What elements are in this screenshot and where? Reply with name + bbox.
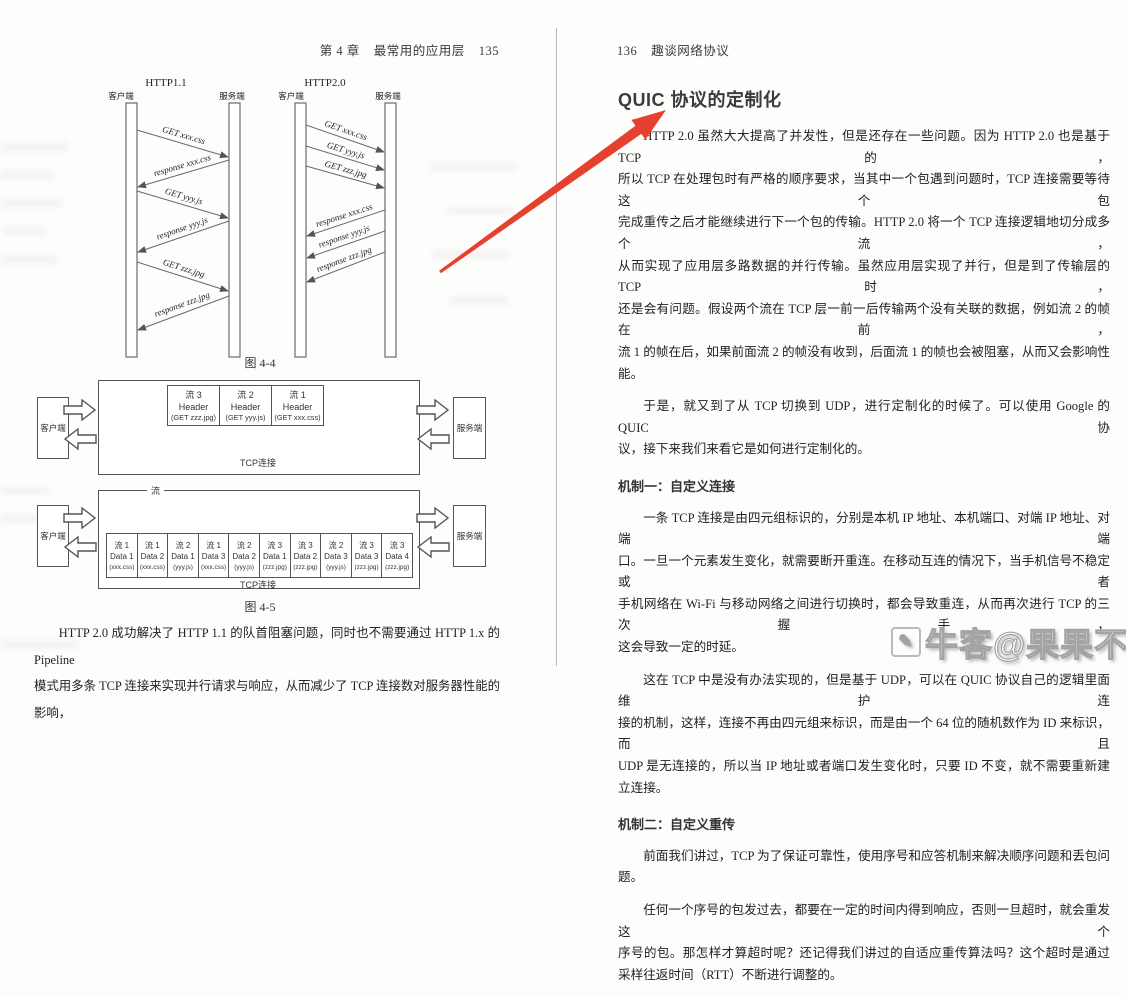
page-gutter-divider xyxy=(556,28,557,666)
stream-id: 流 3 xyxy=(168,389,219,401)
message-label: GET xxx.css xyxy=(161,124,207,146)
page-bleed xyxy=(450,296,508,305)
http11-title: HTTP1.1 xyxy=(145,77,186,89)
stream-id: 流 2 xyxy=(229,540,259,552)
figure-4-5-header-diagram: 客户端 流 3 Header (GET zzz.jpg) 流 2 Header … xyxy=(35,378,485,475)
frame-payload: (GET xxx.css) xyxy=(272,413,323,423)
frame-type: Data 2 xyxy=(138,551,168,563)
page-bleed xyxy=(0,170,54,180)
frame-type: Data 4 xyxy=(382,551,412,563)
page-bleed xyxy=(0,254,58,264)
nowcoder-logo-icon: ✎ xyxy=(891,627,921,657)
stream-id: 流 3 xyxy=(260,540,290,552)
text-line: 从而实现了应用层多路数据的并行传输。虽然应用层实现了并行，但是到了传输层的 TC… xyxy=(618,256,1110,299)
data-frame-box: 流 3Data 4(zzz.jpg) xyxy=(381,533,413,578)
watermark-text: 牛客@果果不戴 xyxy=(925,618,1126,666)
left-page-number: 135 xyxy=(479,44,499,58)
text-line: 接的机制，这样，连接不再由四元组来标识，而是由一个 64 位的随机数作为 ID … xyxy=(618,713,1110,756)
stream-box: 流 2 Header (GET yyy.js) xyxy=(219,385,272,426)
left-page: 第 4 章最常用的应用层135 HTTP1.1 客户端 服务端 GET xxx.… xyxy=(0,0,557,666)
right-page: 136趣谈网络协议 QUIC 协议的定制化 HTTP 2.0 虽然大大提高了并发… xyxy=(557,0,1126,666)
stream-id: 流 1 xyxy=(199,540,229,552)
text-line: UDP 是无连接的，所以当 IP 地址或者端口发生变化时，只要 ID 不变，就不… xyxy=(618,756,1110,799)
stream-id: 流 1 xyxy=(138,540,168,552)
block-arrow-left-icon xyxy=(415,535,451,559)
http20-server-label: 服务端 xyxy=(375,91,401,101)
page-bleed xyxy=(4,226,46,236)
frame-type: Data 3 xyxy=(352,551,382,563)
page-bleed xyxy=(446,206,514,215)
frame-payload: (yyy.js) xyxy=(321,563,351,572)
stream-id: 流 2 xyxy=(220,389,271,401)
stream-id: 流 1 xyxy=(107,540,137,552)
stream-id: 流 2 xyxy=(321,540,351,552)
http20-server-lifeline xyxy=(385,103,396,357)
block-arrow-right-icon xyxy=(62,398,98,422)
block-arrow-right-icon xyxy=(62,506,98,530)
page-bleed xyxy=(430,162,518,171)
http20-client-label: 客户端 xyxy=(278,91,304,101)
message-label: response zzz.jpg xyxy=(315,244,373,274)
frame-type: Data 1 xyxy=(260,551,290,563)
right-page-running-header: 136趣谈网络协议 xyxy=(617,40,729,59)
block-arrow-left-icon xyxy=(415,427,451,451)
message-label: GET zzz.jpg xyxy=(324,158,369,179)
stream-id: 流 3 xyxy=(352,540,382,552)
figure-4-5-data-diagram: 流 客户端 流 1Data 1(xxx.css) 流 1Data 2(xxx.c… xyxy=(35,483,485,595)
right-page-body: HTTP 2.0 虽然大大提高了并发性，但是还存在一些问题。因为 HTTP 2.… xyxy=(618,126,1110,997)
mechanism-1-heading: 机制一：自定义连接 xyxy=(618,476,1110,498)
page-bleed xyxy=(0,198,62,208)
page-bleed xyxy=(0,142,68,152)
server-box: 服务端 xyxy=(453,397,486,459)
data-frame-box: 流 1Data 2(xxx.css) xyxy=(137,533,169,578)
mechanism-2-heading: 机制二：自定义重传 xyxy=(618,814,1110,836)
data-frame-box: 流 3Data 1(zzz.jpg) xyxy=(259,533,291,578)
text-line: 所以 TCP 在处理包时有严格的顺序要求，当其中一个包遇到问题时，TCP 连接需… xyxy=(618,169,1110,212)
right-page-number: 136 xyxy=(617,44,637,58)
text-line: HTTP 2.0 成功解决了 HTTP 1.1 的队首阻塞问题，同时也不需要通过… xyxy=(34,620,500,673)
http11-client-lifeline xyxy=(126,103,137,357)
http11-server-lifeline xyxy=(229,103,240,357)
stream-id: 流 2 xyxy=(168,540,198,552)
chapter-label: 第 4 章 xyxy=(320,44,360,58)
stream-tag-label: 流 xyxy=(147,484,164,497)
frame-payload: (xxx.css) xyxy=(107,563,137,572)
data-frame-box: 流 1Data 3(xxx.css) xyxy=(198,533,230,578)
message-label: GET zzz.jpg xyxy=(162,257,207,280)
paragraph: 这在 TCP 中是没有办法实现的，但是基于 UDP，可以在 QUIC 协议自己的… xyxy=(618,670,1110,800)
text-line: 任何一个序号的包发过去，都要在一定的时间内得到响应，否则一旦超时，就会重发这个 xyxy=(618,900,1110,943)
text-line: 这在 TCP 中是没有办法实现的，但是基于 UDP，可以在 QUIC 协议自己的… xyxy=(618,670,1110,713)
frame-payload: (yyy.js) xyxy=(168,563,198,572)
data-frame-box: 流 2Data 3(yyy.js) xyxy=(320,533,352,578)
stream-header-row: 流 3 Header (GET zzz.jpg) 流 2 Header (GET… xyxy=(168,385,324,426)
frame-payload: (GET yyy.js) xyxy=(220,413,271,423)
http11-server-label: 服务端 xyxy=(219,91,245,101)
frame-type: Data 1 xyxy=(107,551,137,563)
tcp-connection-label: TCP连接 xyxy=(98,578,418,591)
block-arrow-right-icon xyxy=(415,506,451,530)
http20-client-lifeline xyxy=(295,103,306,357)
frame-payload: (xxx.css) xyxy=(199,563,229,572)
text-line: HTTP 2.0 虽然大大提高了并发性，但是还存在一些问题。因为 HTTP 2.… xyxy=(618,126,1110,169)
data-frame-row: 流 1Data 1(xxx.css) 流 1Data 2(xxx.css) 流 … xyxy=(107,533,413,578)
paragraph: HTTP 2.0 虽然大大提高了并发性，但是还存在一些问题。因为 HTTP 2.… xyxy=(618,126,1110,385)
frame-payload: (zzz.jpg) xyxy=(291,563,321,572)
stream-box: 流 1 Header (GET xxx.css) xyxy=(271,385,324,426)
stream-box: 流 3 Header (GET zzz.jpg) xyxy=(167,385,220,426)
message-label: response zzz.jpg xyxy=(153,289,212,318)
frame-payload: (zzz.jpg) xyxy=(260,563,290,572)
figure-4-4-sequence-diagrams: HTTP1.1 客户端 服务端 GET xxx.css response xxx… xyxy=(95,70,425,370)
data-frame-box: 流 1Data 1(xxx.css) xyxy=(106,533,138,578)
frame-payload: (zzz.jpg) xyxy=(352,563,382,572)
data-frame-box: 流 2Data 1(yyy.js) xyxy=(167,533,199,578)
paragraph: 于是，就又到了从 TCP 切换到 UDP，进行定制化的时候了。可以使用 Goog… xyxy=(618,396,1110,461)
section-title: QUIC 协议的定制化 xyxy=(618,86,782,112)
http11-client-label: 客户端 xyxy=(108,91,134,101)
text-line: 一条 TCP 连接是由四元组标识的，分别是本机 IP 地址、本机端口、对端 IP… xyxy=(618,508,1110,551)
data-frame-box: 流 2Data 2(yyy.js) xyxy=(228,533,260,578)
text-line: 于是，就又到了从 TCP 切换到 UDP，进行定制化的时候了。可以使用 Goog… xyxy=(618,396,1110,439)
frame-type: Header xyxy=(272,401,323,413)
server-box: 服务端 xyxy=(453,505,486,567)
stream-id: 流 1 xyxy=(272,389,323,401)
frame-type: Header xyxy=(220,401,271,413)
block-arrow-right-icon xyxy=(415,398,451,422)
text-line: 采样往返时间（RTT）不断进行调整的。 xyxy=(618,965,1110,987)
figure-4-5-caption: 图 4-5 xyxy=(35,598,485,615)
frame-type: Header xyxy=(168,401,219,413)
text-line: 序号的包。那怎样才算超时呢？还记得我们讲过的自适应重传算法吗？这个超时是通过 xyxy=(618,943,1110,965)
frame-type: Data 3 xyxy=(321,551,351,563)
left-page-paragraph: HTTP 2.0 成功解决了 HTTP 1.1 的队首阻塞问题，同时也不需要通过… xyxy=(34,620,500,726)
text-line: 还是会有问题。假设两个流在 TCP 层一前一后传输两个没有关联的数据，例如流 2… xyxy=(618,299,1110,342)
stream-id: 流 3 xyxy=(382,540,412,552)
text-line: 流 1 的帧在后，如果前面流 2 的帧没有收到，后面流 1 的帧也会被阻塞，从而… xyxy=(618,342,1110,385)
paragraph: 前面我们讲过，TCP 为了保证可靠性，使用序号和应答机制来解决顺序问题和丢包问题… xyxy=(618,846,1110,889)
text-line: 完成重传之后才能继续进行下一个包的传输。HTTP 2.0 将一个 TCP 连接逻… xyxy=(618,212,1110,255)
frame-payload: (zzz.jpg) xyxy=(382,563,412,572)
chapter-title: 最常用的应用层 xyxy=(374,44,465,58)
frame-type: Data 1 xyxy=(168,551,198,563)
tcp-connection-label: TCP连接 xyxy=(98,456,418,469)
frame-type: Data 3 xyxy=(199,551,229,563)
paragraph: 任何一个序号的包发过去，都要在一定的时间内得到响应，否则一旦超时，就会重发这个 … xyxy=(618,900,1110,986)
figure-4-4-caption: 图 4-4 xyxy=(35,354,485,371)
stream-id: 流 3 xyxy=(291,540,321,552)
http20-title: HTTP2.0 xyxy=(304,77,346,89)
block-arrow-left-icon xyxy=(62,427,98,451)
book-title: 趣谈网络协议 xyxy=(651,44,729,58)
message-label: GET yyy.js xyxy=(326,140,367,161)
block-arrow-left-icon xyxy=(62,535,98,559)
frame-payload: (GET zzz.jpg) xyxy=(168,413,219,423)
text-line: 议，接下来我们来看它是如何进行定制化的。 xyxy=(618,439,1110,461)
frame-type: Data 2 xyxy=(291,551,321,563)
watermark: ✎ 牛客@果果不戴 xyxy=(891,618,1126,666)
page-bleed xyxy=(432,250,510,259)
frame-payload: (xxx.css) xyxy=(138,563,168,572)
data-frame-box: 流 3Data 2(zzz.jpg) xyxy=(290,533,322,578)
frame-payload: (yyy.js) xyxy=(229,563,259,572)
frame-type: Data 2 xyxy=(229,551,259,563)
text-line: 模式用多条 TCP 连接来实现并行请求与响应，从而减少了 TCP 连接数对服务器… xyxy=(34,673,500,726)
text-line: 前面我们讲过，TCP 为了保证可靠性，使用序号和应答机制来解决顺序问题和丢包问题… xyxy=(618,846,1110,889)
left-page-running-header: 第 4 章最常用的应用层135 xyxy=(320,40,499,59)
message-label: response yyy.js xyxy=(155,215,209,242)
text-line: 口。一旦一个元素发生变化，就需要断开重连。在移动互连的情况下，当手机信号不稳定或… xyxy=(618,551,1110,594)
data-frame-box: 流 3Data 3(zzz.jpg) xyxy=(351,533,383,578)
message-label: GET yyy.js xyxy=(164,186,205,207)
